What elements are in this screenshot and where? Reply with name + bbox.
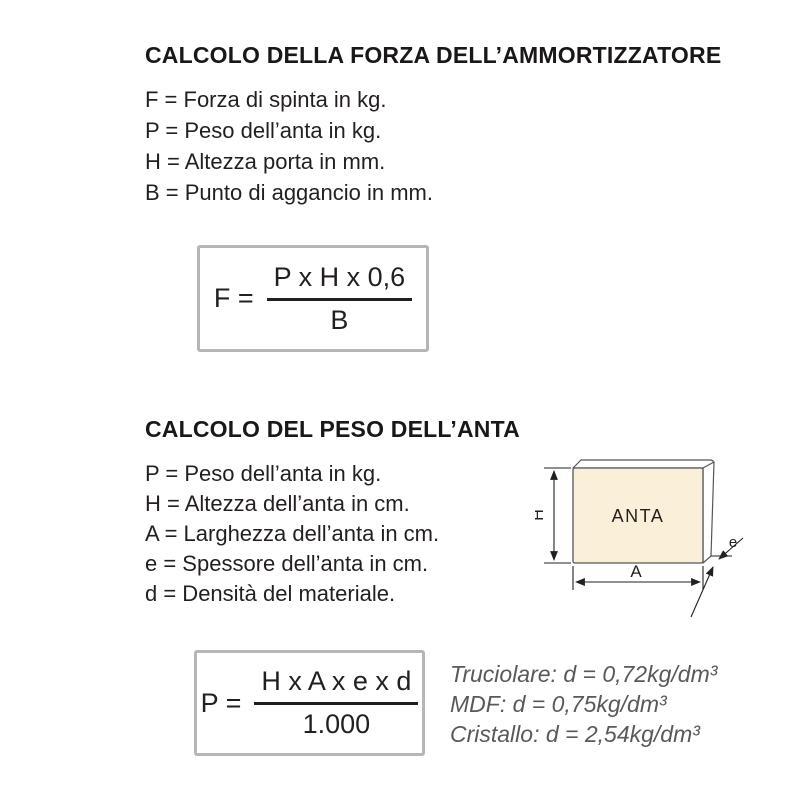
e-arrow-lower [691, 567, 713, 617]
force-formula-lhs: F = [214, 283, 254, 314]
material-densities: Truciolare: d = 0,72kg/dm³ MDF: d = 0,75… [450, 659, 717, 749]
force-formula-denominator: B [267, 298, 413, 336]
definition-line-f: F = Forza di spinta in kg. [145, 84, 433, 115]
anta-panel-diagram: ANTA H A e [535, 453, 775, 628]
definition-line-d: d = Densità del materiale. [145, 579, 439, 609]
force-formula-numerator: P x H x 0,6 [267, 262, 413, 298]
weight-formula-fraction: H x A x e x d 1.000 [254, 666, 418, 740]
definition-line-p2: P = Peso dell’anta in kg. [145, 459, 439, 489]
weight-formula-box: P = H x A x e x d 1.000 [194, 650, 425, 756]
definition-line-p: P = Peso dell’anta in kg. [145, 115, 433, 146]
definition-line-h2: H = Altezza dell’anta in cm. [145, 489, 439, 519]
force-formula-fraction: P x H x 0,6 B [267, 262, 413, 336]
panel-top-face [573, 460, 714, 468]
definition-line-a: A = Larghezza dell’anta in cm. [145, 519, 439, 549]
panel-label: ANTA [612, 506, 665, 526]
e-dimension-label: e [729, 534, 737, 551]
weight-formula-lhs: P = [201, 688, 242, 719]
weight-formula-denominator: 1.000 [254, 702, 418, 740]
definition-line-e: e = Spessore dell’anta in cm. [145, 549, 439, 579]
weight-section-title: CALCOLO DEL PESO DELL’ANTA [145, 416, 520, 443]
catalog-page: CALCOLO DELLA FORZA DELL’AMMORTIZZATORE … [0, 0, 800, 800]
h-dimension-label: H [535, 509, 547, 521]
weight-formula-numerator: H x A x e x d [254, 666, 418, 702]
weight-definitions: P = Peso dell’anta in kg. H = Altezza de… [145, 459, 439, 609]
panel-side-face [703, 462, 714, 563]
definition-line-b: B = Punto di aggancio in mm. [145, 177, 433, 208]
a-dimension-label: A [630, 562, 642, 581]
density-truciolare: Truciolare: d = 0,72kg/dm³ [450, 659, 717, 689]
definition-line-h: H = Altezza porta in mm. [145, 146, 433, 177]
force-formula-box: F = P x H x 0,6 B [197, 245, 429, 352]
force-definitions: F = Forza di spinta in kg. P = Peso dell… [145, 84, 433, 208]
force-section-title: CALCOLO DELLA FORZA DELL’AMMORTIZZATORE [145, 42, 721, 69]
density-cristallo: Cristallo: d = 2,54kg/dm³ [450, 719, 717, 749]
density-mdf: MDF: d = 0,75kg/dm³ [450, 689, 717, 719]
